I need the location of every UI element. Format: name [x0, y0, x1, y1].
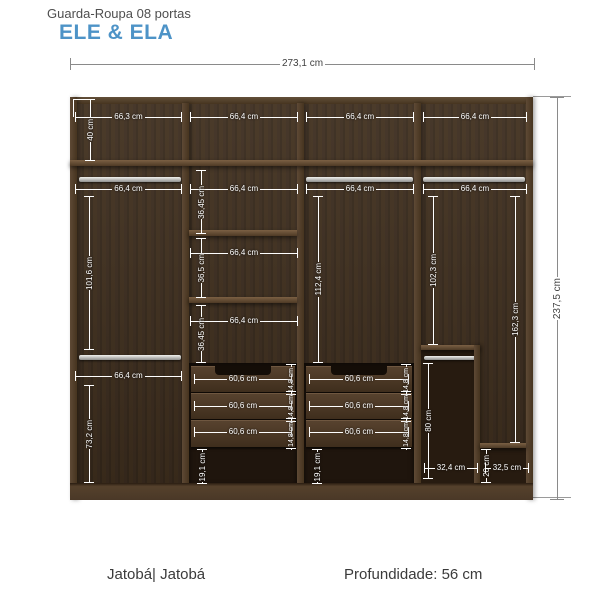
- dim-col1-top-height: 40 cm: [85, 99, 95, 161]
- dim-drawer-height-col2-3: 14,8 cm: [286, 418, 296, 449]
- dim-bracket-v: [73, 99, 74, 117]
- finish-label: Jatobá| Jatobá: [107, 566, 205, 583]
- shelf-col4-low: [480, 443, 526, 448]
- cabinet-plinth: [70, 483, 533, 500]
- hanging-rod-boot-compartment: [424, 356, 477, 360]
- dim-col1-lower-hang-height: 73,2 cm: [84, 385, 94, 483]
- dim-boot-height: 80 cm: [423, 363, 433, 479]
- dim-col2-plinth-height: 19,1 cm: [197, 449, 207, 484]
- dim-top-width-col2: 66,4 cm: [190, 112, 298, 122]
- dim-top-width-col4: 66,4 cm: [423, 112, 527, 122]
- dim-top-width-col3: 66,4 cm: [306, 112, 414, 122]
- cabinet-left-panel: [70, 97, 77, 500]
- dim-drawer-width-col3-1: 60,6 cm: [309, 374, 409, 384]
- dim-total-height: 237,5 cm: [550, 97, 564, 500]
- dim-col4-full-height: 162,3 cm: [510, 196, 520, 443]
- wardrobe-spec-diagram: Guarda-Roupa 08 portas ELE & ELA 273,1 c…: [0, 0, 600, 600]
- dim-shelf1-width-col2: 66,4 cm: [190, 184, 298, 194]
- dim-drawer-width-col2-1: 60,6 cm: [194, 374, 292, 384]
- hanging-rod-col4: [423, 177, 525, 182]
- page-title: ELE & ELA: [59, 21, 173, 45]
- hanging-rod-col3: [306, 177, 413, 182]
- dim-rod-width-col4: 66,4 cm: [423, 184, 527, 194]
- product-line-label: Guarda-Roupa 08 portas: [47, 6, 191, 21]
- dim-drawer-width-col2-3: 60,6 cm: [194, 427, 292, 437]
- dim-col1-upper-hang-height: 101,6 cm: [84, 196, 94, 350]
- dim-shelf3-width-col2: 66,4 cm: [190, 316, 298, 326]
- dim-low-shelf-width: 32,5 cm: [485, 463, 529, 473]
- dim-boot-width: 32,4 cm: [424, 463, 478, 473]
- dim-col2-gap1: 36,45 cm: [196, 170, 206, 234]
- cabinet-right-panel: [526, 97, 533, 500]
- top-shelf: [70, 160, 533, 166]
- dim-drawer-width-col2-2: 60,6 cm: [194, 401, 292, 411]
- boot-compartment-top: [421, 345, 480, 350]
- dim-col2-gap3: 36,45 cm: [196, 305, 206, 363]
- hanging-rod-col1-upper: [79, 177, 181, 182]
- dim-drawer-height-col3-3: 14,8 cm: [401, 418, 411, 449]
- dim-col3-hang-height: 112,4 cm: [313, 196, 323, 363]
- dim-rod2-width-col1: 66,4 cm: [75, 371, 182, 381]
- dim-drawer-width-col3-3: 60,6 cm: [309, 427, 409, 437]
- depth-label: Profundidade: 56 cm: [344, 566, 482, 583]
- dim-shelf2-width-col2: 66,4 cm: [190, 248, 298, 258]
- hanging-rod-col1-lower: [79, 355, 181, 360]
- dim-col4-hang-height: 102,3 cm: [428, 196, 438, 345]
- dim-drawer-width-col3-2: 60,6 cm: [309, 401, 409, 411]
- dim-col3-plinth-height: 19,1 cm: [312, 449, 322, 484]
- dim-rod-width-col1: 66,4 cm: [75, 184, 182, 194]
- dim-rod-width-col3: 66,4 cm: [306, 184, 414, 194]
- dim-col2-gap2: 36,5 cm: [196, 238, 206, 298]
- dim-total-width: 273,1 cm: [70, 58, 535, 70]
